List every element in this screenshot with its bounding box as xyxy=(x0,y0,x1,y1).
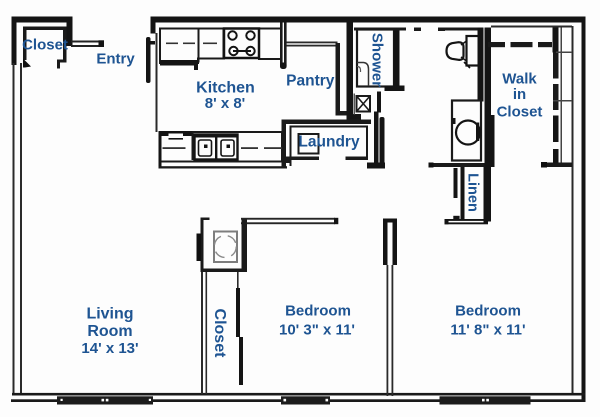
svg-text:Pantry: Pantry xyxy=(286,73,335,90)
svg-text:8' x 8': 8' x 8' xyxy=(205,95,246,112)
svg-text:in: in xyxy=(513,86,526,103)
svg-text:14' x 13': 14' x 13' xyxy=(81,340,138,357)
svg-text:Shower: Shower xyxy=(369,33,386,87)
svg-text:Room: Room xyxy=(87,323,132,340)
svg-text:11' 8" x 11': 11' 8" x 11' xyxy=(450,322,525,339)
svg-text:Bedroom: Bedroom xyxy=(285,303,351,320)
svg-text:Linen: Linen xyxy=(464,173,480,212)
svg-text:Closet: Closet xyxy=(211,309,228,359)
svg-text:Closet: Closet xyxy=(22,37,68,54)
svg-text:10' 3" x 11': 10' 3" x 11' xyxy=(279,322,355,339)
svg-text:Walk: Walk xyxy=(502,71,537,88)
svg-text:Closet: Closet xyxy=(497,104,543,121)
svg-text:Kitchen: Kitchen xyxy=(196,80,255,97)
svg-text:Living: Living xyxy=(86,306,133,323)
svg-text:Entry: Entry xyxy=(96,51,135,68)
svg-text:Laundry: Laundry xyxy=(298,134,360,151)
svg-text:Bedroom: Bedroom xyxy=(455,303,521,320)
